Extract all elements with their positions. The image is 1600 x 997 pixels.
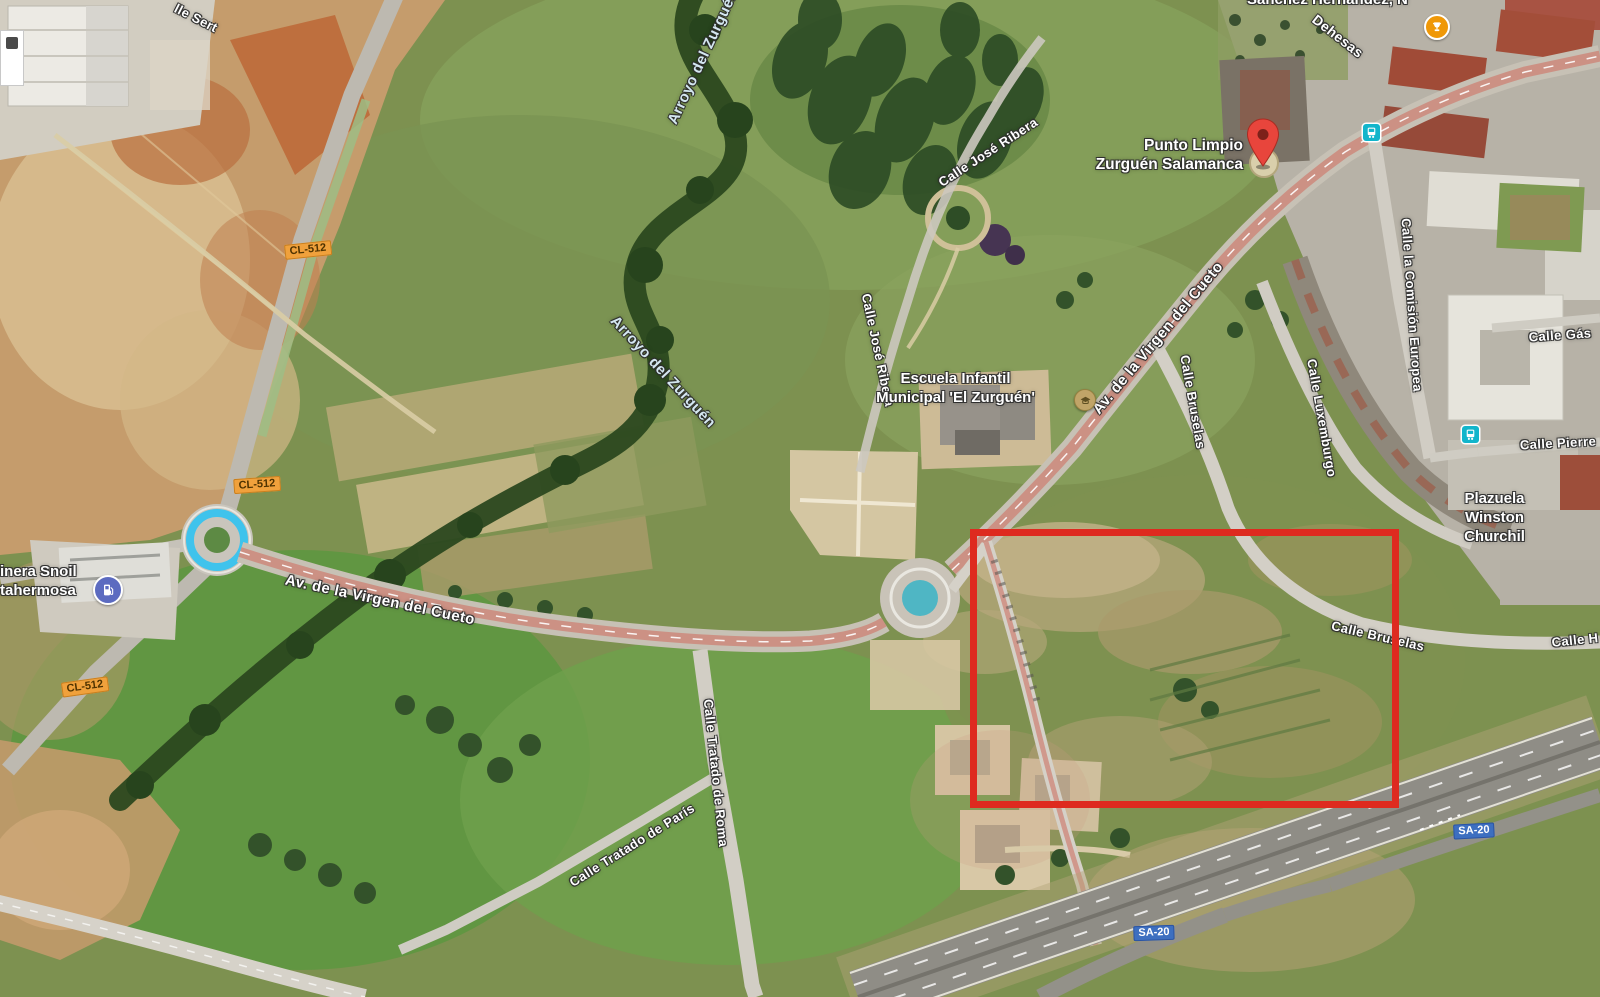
poi-line: Winston xyxy=(1437,509,1552,528)
poi-label-punto-limpio[interactable]: Punto Limpio Zurguén Salamanca xyxy=(1018,136,1243,175)
poi-line: Escuela Infantil xyxy=(828,370,1083,389)
satellite-map-view[interactable]: lle SertDehesasArroyo del ZurguénArroyo … xyxy=(0,0,1600,997)
road-shield-sa-20: SA-20 xyxy=(1453,822,1495,839)
poi-line: Plazuela xyxy=(1437,490,1552,509)
poi-label-sanchez-hernandez: Sánchez Hernández, N xyxy=(1247,0,1507,10)
highlight-rectangle-annotation xyxy=(970,529,1399,808)
poi-label-escuela-infantil[interactable]: Escuela Infantil Municipal 'El Zurguén' xyxy=(828,370,1083,408)
red-map-pin[interactable] xyxy=(1246,118,1280,175)
poi-label-plazuela-winston-churchil: Plazuela Winston Churchil xyxy=(1437,490,1552,546)
map-ui-fragment[interactable] xyxy=(0,30,24,86)
bus-stop-icon[interactable] xyxy=(1363,124,1380,141)
transit-stop-icon[interactable] xyxy=(1462,426,1479,443)
poi-line: Churchil xyxy=(1437,528,1552,547)
school-poi-icon[interactable] xyxy=(1074,389,1096,411)
gas-station-icon[interactable] xyxy=(93,575,123,605)
poi-label-gasolinera[interactable]: inera Snoil tahermosa xyxy=(0,563,150,601)
poi-line: tahermosa xyxy=(0,582,150,601)
ui-fragment-glyph xyxy=(6,37,18,49)
poi-line: inera Snoil xyxy=(0,563,150,582)
poi-line: Zurguén Salamanca xyxy=(1018,155,1243,174)
trophy-poi-icon[interactable] xyxy=(1424,14,1450,40)
satellite-imagery xyxy=(0,0,1600,997)
road-shield-sa-20: SA-20 xyxy=(1133,925,1175,941)
poi-line: Municipal 'El Zurguén' xyxy=(828,389,1083,408)
poi-line: Sánchez Hernández, N xyxy=(1247,0,1507,10)
poi-line: Punto Limpio xyxy=(1018,136,1243,155)
